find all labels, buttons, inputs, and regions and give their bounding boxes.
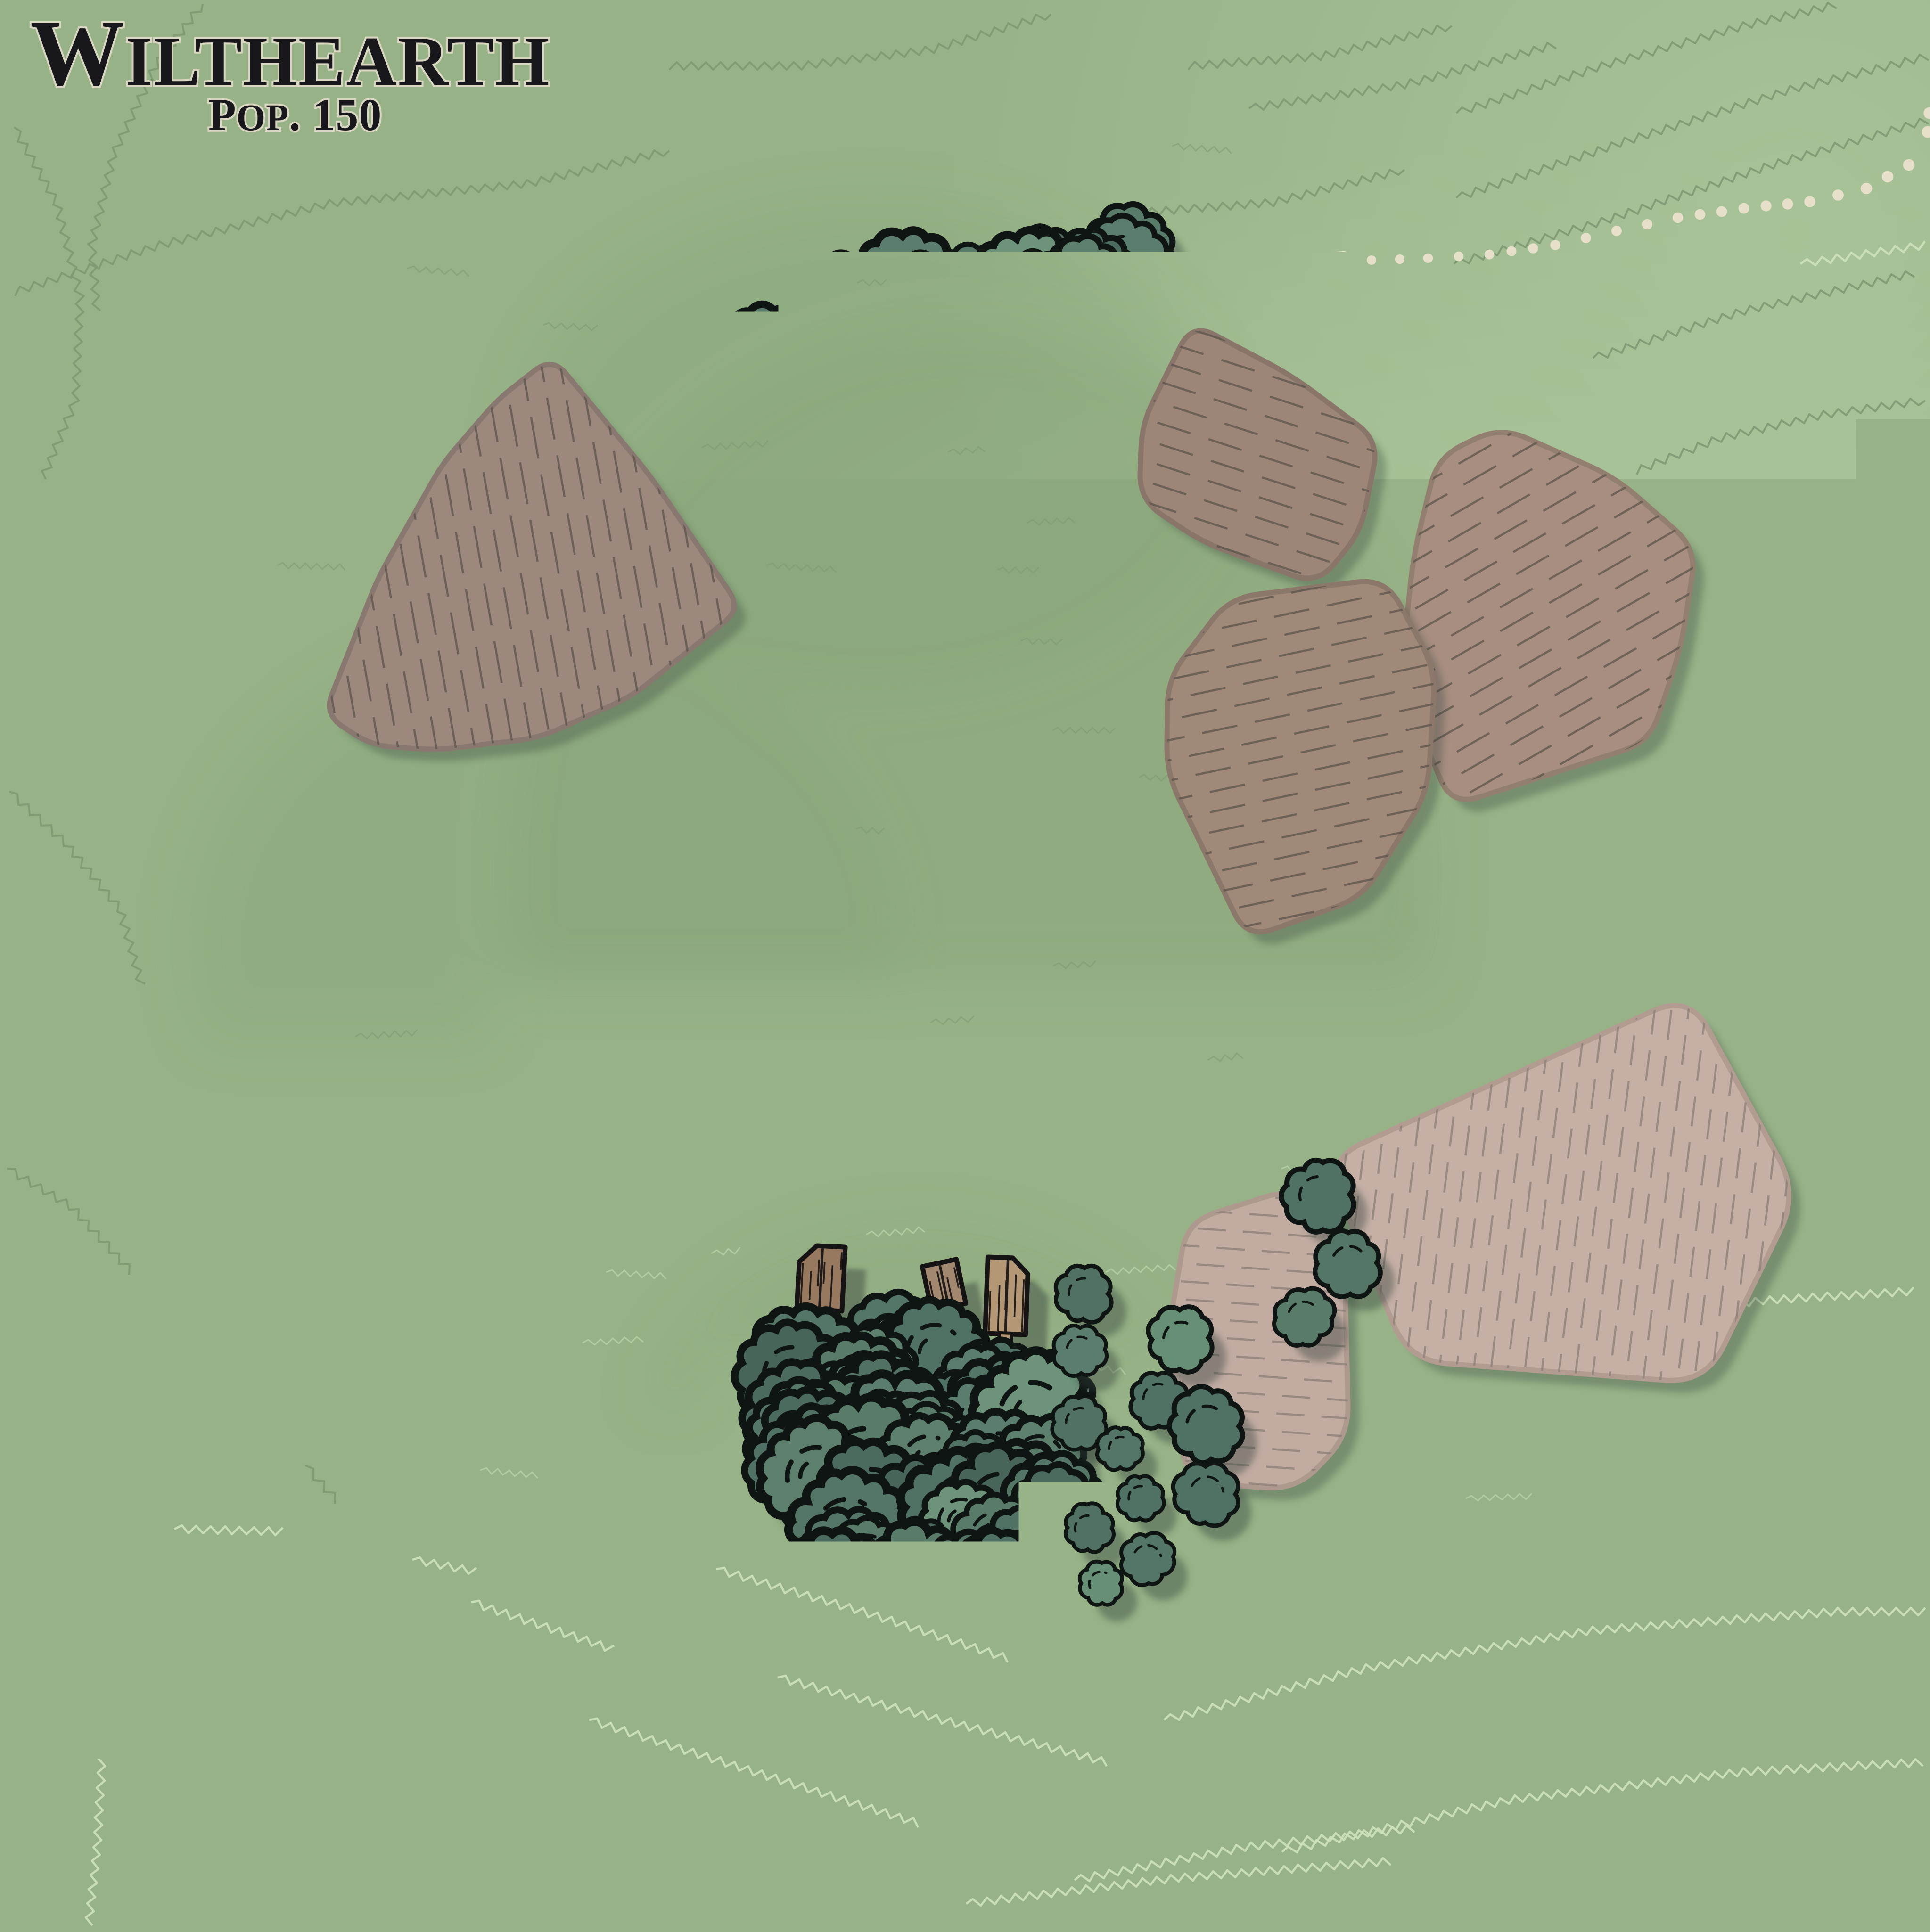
svg-text:POP. 150: POP. 150: [208, 90, 382, 140]
